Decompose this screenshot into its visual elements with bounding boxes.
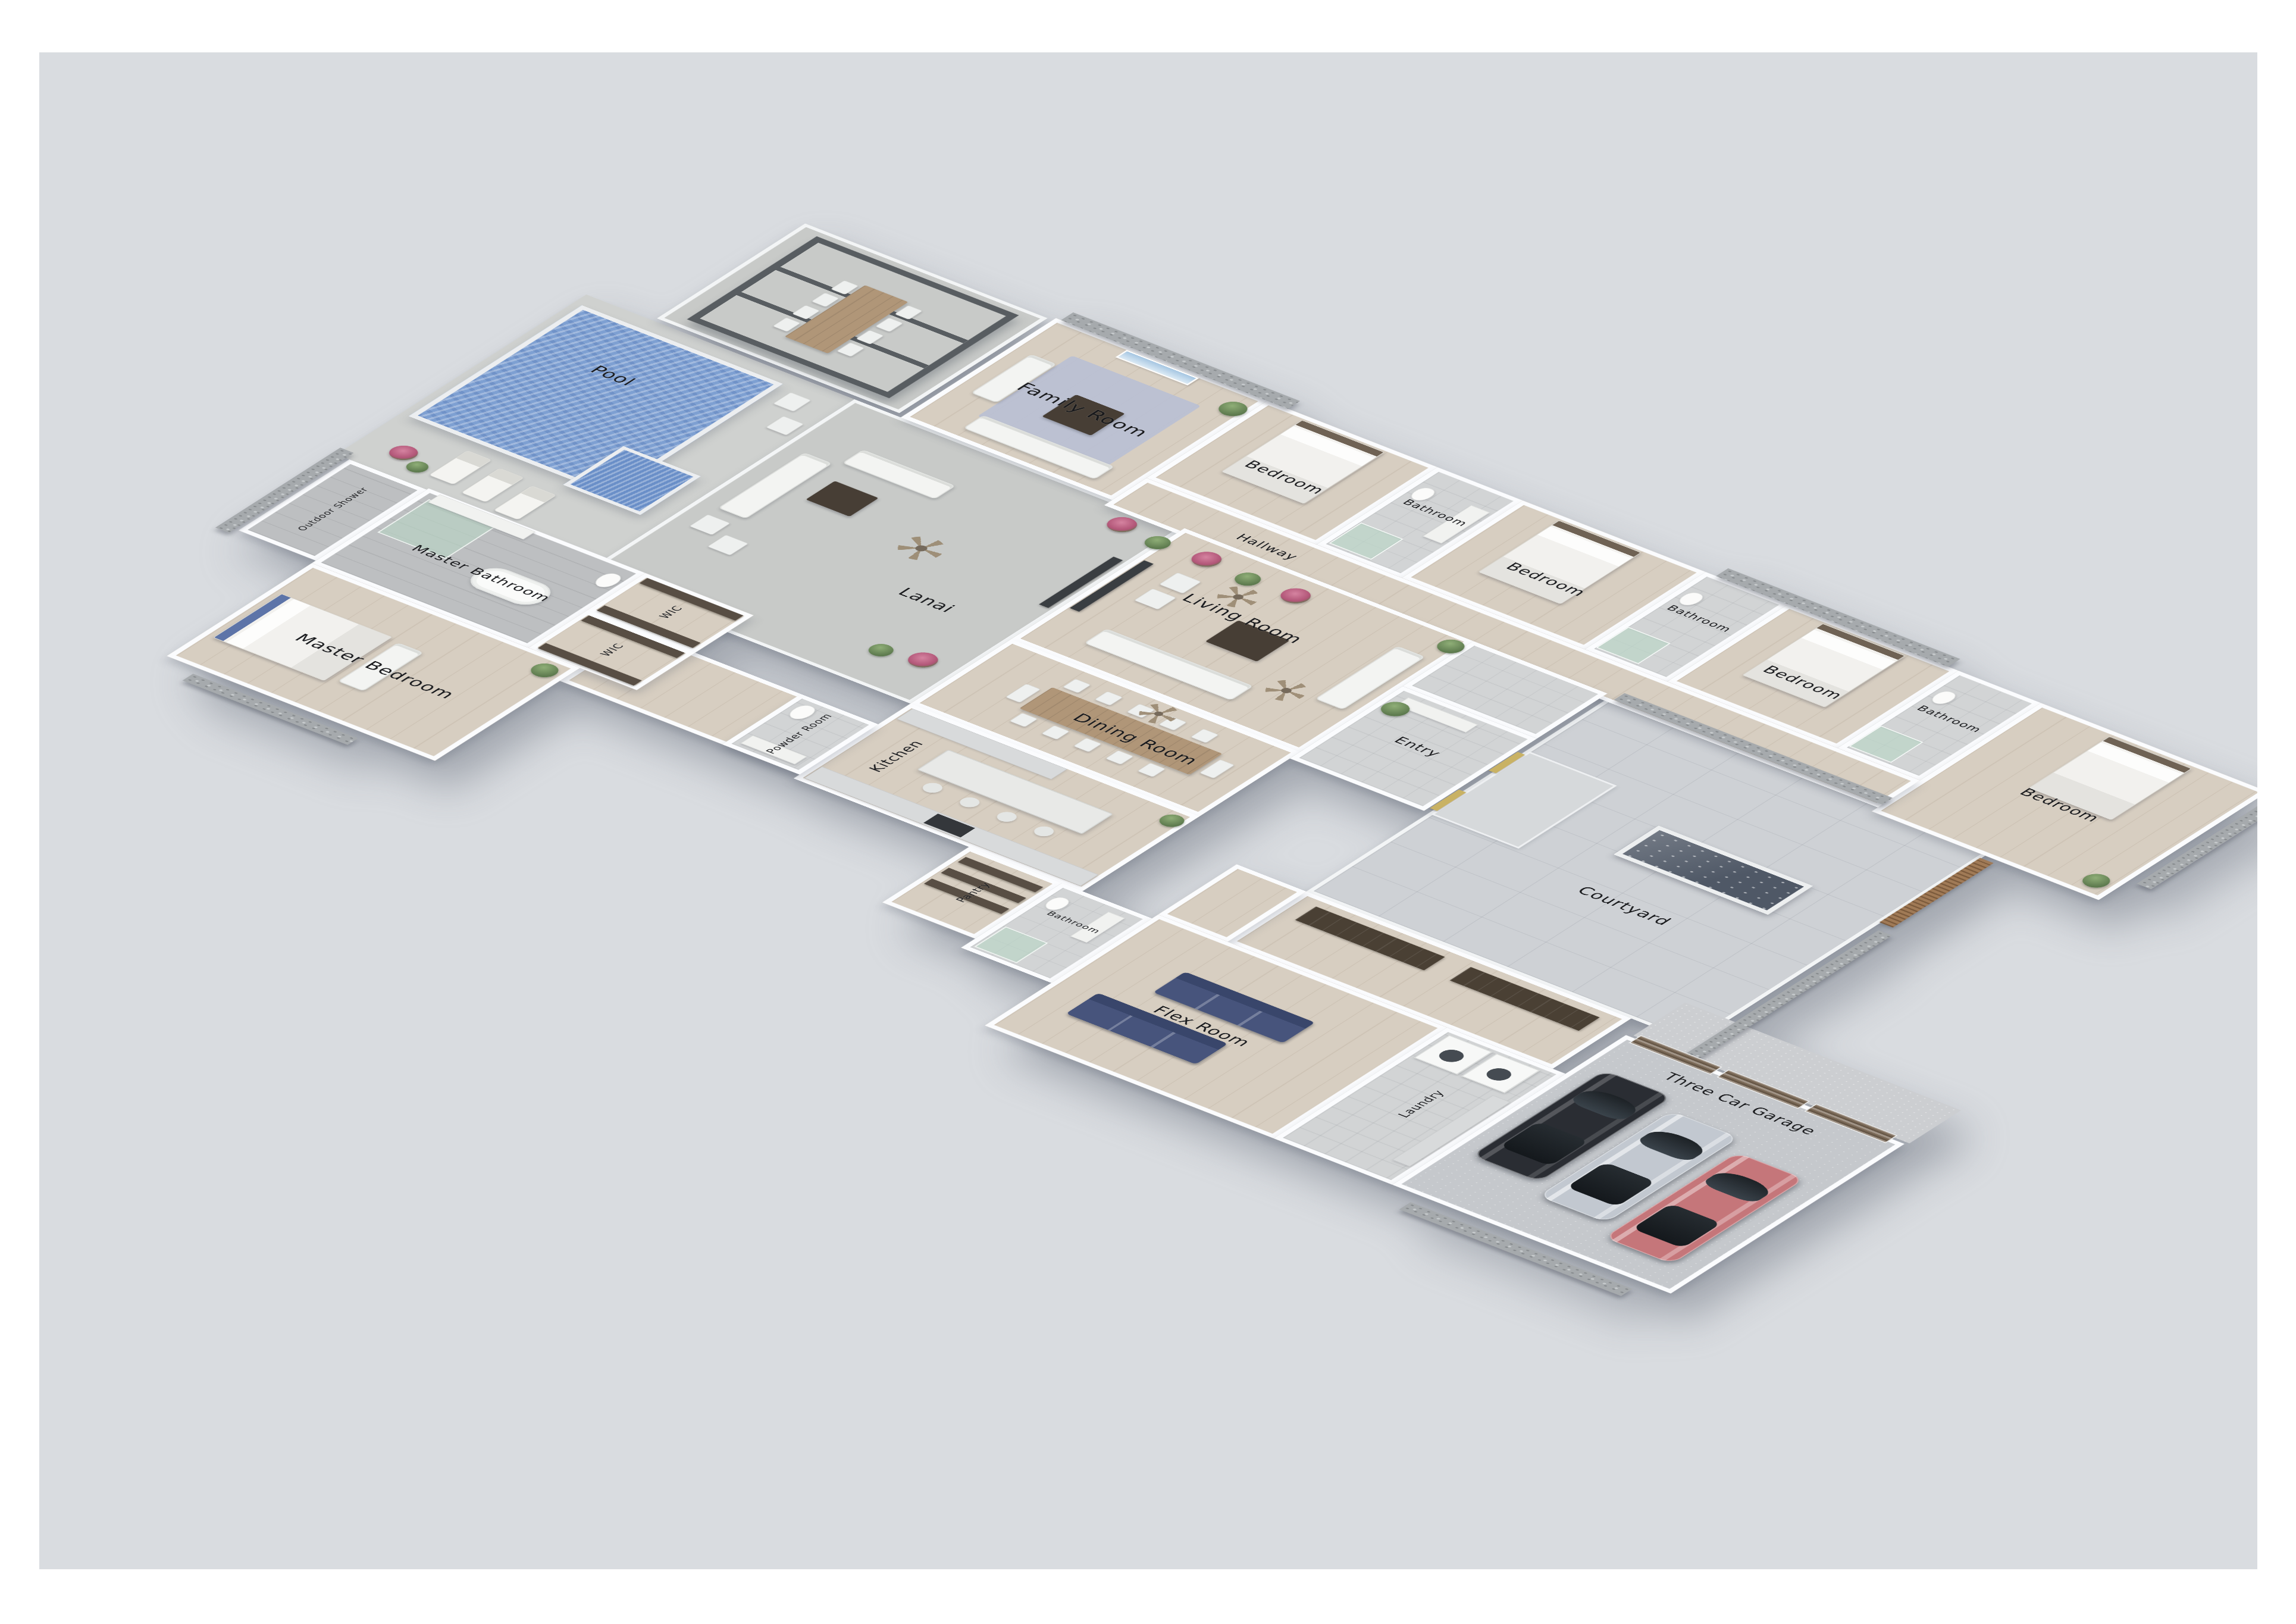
floor-plan-canvas: LanaiCourtyardPoolFamily RoomBedroomBath… bbox=[39, 52, 2257, 1569]
floor-plan: LanaiCourtyardPoolFamily RoomBedroomBath… bbox=[39, 195, 2257, 1304]
plan-shadow-wrap: LanaiCourtyardPoolFamily RoomBedroomBath… bbox=[39, 52, 2257, 1569]
page: { "scene": { "background": "#ffffff", "c… bbox=[0, 0, 2296, 1624]
